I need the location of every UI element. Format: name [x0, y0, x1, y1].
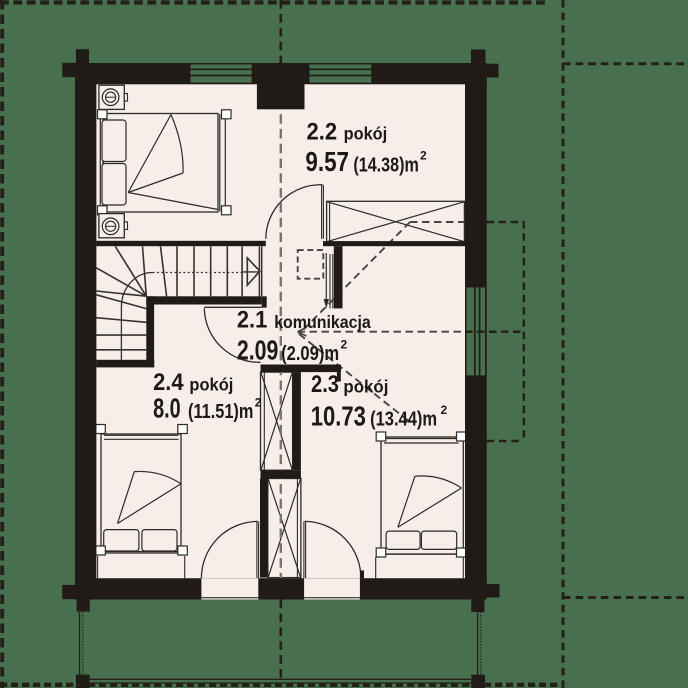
svg-text:2: 2 [441, 403, 448, 417]
svg-text:2: 2 [255, 396, 262, 410]
svg-text:8.0: 8.0 [153, 393, 181, 424]
svg-text:2: 2 [420, 149, 427, 163]
svg-text:pokój: pokój [189, 374, 233, 394]
svg-text:2: 2 [341, 338, 348, 352]
svg-text:(11.51)m: (11.51)m [188, 401, 253, 423]
svg-text:komunikacja: komunikacja [274, 312, 371, 332]
svg-text:2.09: 2.09 [237, 334, 278, 365]
svg-text:9.57: 9.57 [305, 146, 349, 177]
svg-text:(14.38)m: (14.38)m [353, 154, 418, 176]
svg-text:(2.09)m: (2.09)m [281, 343, 339, 365]
svg-text:2.3: 2.3 [311, 371, 339, 398]
svg-text:(13.44)m: (13.44)m [370, 409, 437, 431]
svg-text:2.2: 2.2 [307, 118, 338, 145]
svg-text:pokój: pokój [343, 376, 388, 396]
svg-text:pokój: pokój [344, 123, 388, 143]
svg-text:10.73: 10.73 [311, 400, 366, 431]
svg-text:2.1: 2.1 [237, 307, 267, 334]
